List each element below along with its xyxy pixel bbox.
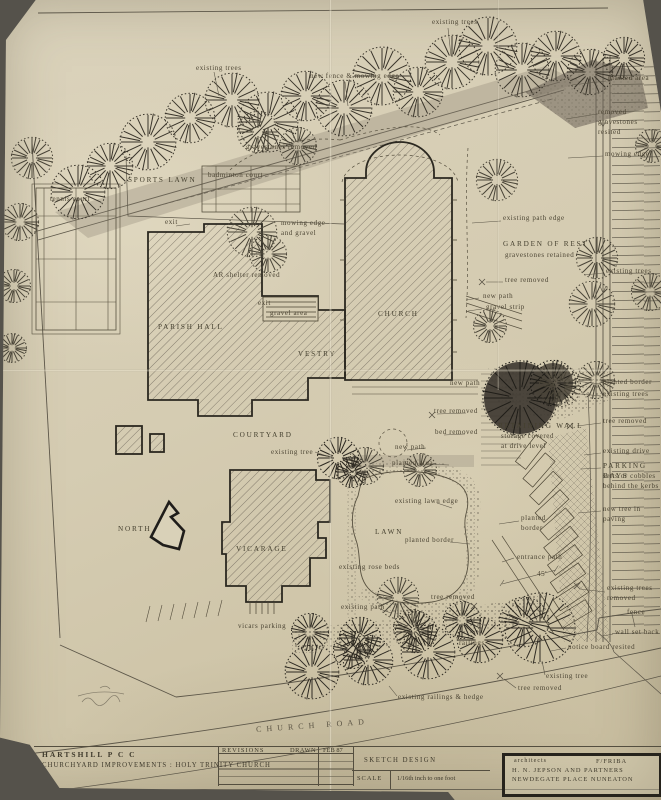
plan-annotations: existing treesnew fence & mowing edgeexi… [0,0,661,800]
label-existing-trees-bank: existing trees [603,390,649,400]
label-badminton-court: badminton court [208,171,263,181]
label-storage-covered: storage covered at drive level [501,432,554,452]
label-church: CHURCH [378,309,419,319]
label-north: NORTH [118,524,151,534]
drawing-sheet: existing treesnew fence & mowing edgeexi… [0,0,661,800]
label-planted-border-mid: planted border [521,514,546,534]
label-church-road: CHURCH ROAD [256,716,370,735]
label-setts-or-cobbles: setts or cobbles behind the kerbs [603,472,659,492]
label-existing-drive: existing drive [603,447,650,457]
photograph-of-drawing: existing treesnew fence & mowing edgeexi… [0,0,661,800]
label-existing-trees-top-left: existing trees [196,64,242,74]
label-exit-upper: exit [165,218,178,228]
label-planted-area-courtyard: planted area [392,459,433,469]
label-planted-area-right: planted area [608,74,649,84]
label-tree-removed-terrace: tree removed [434,407,478,417]
label-tree-removed-entrance: tree removed [518,684,562,694]
label-entrance-path: entrance path [517,553,562,563]
label-new-path-garden: new path [483,292,513,302]
label-parish-hall: PARISH HALL [158,322,224,332]
label-planted-border-right: planted border [603,378,652,388]
label-new-tree-in-paving: new tree in paving [603,505,661,525]
label-fence: fence [627,608,645,618]
label-tree-removed-garden: tree removed [505,276,549,286]
label-planted-border-lawn: planted border [405,536,454,546]
label-gravel-strip: gravel strip [486,303,525,313]
label-existing-lawn-edge: existing lawn edge [395,497,458,507]
label-tennis-court: tennis court [50,195,90,205]
label-existing-tree-entrance: existing tree [546,672,588,682]
label-existing-rose-beds: existing rose beds [339,563,400,573]
label-tree-removed-bank: tree removed [603,417,647,427]
label-ar-shelter-removed: AR shelter removed [213,271,280,281]
label-new-path-courtyard: new path [395,443,425,453]
label-existing-trees-removed: existing trees removed [607,584,653,604]
label-exit-lower: exit [258,299,271,309]
label-sports-lawn: SPORTS LAWN [128,175,197,185]
label-tree-removed-lawn: tree removed [431,593,475,603]
label-vicars-parking: vicars parking [238,622,286,632]
label-new-path-terrace: new path [450,379,480,389]
label-dimension-45ft: 45' [537,570,547,580]
label-garden-of-rest: GARDEN OF REST [503,239,589,249]
label-railings: railings [459,639,485,649]
label-bed-removed: bed removed [435,428,478,438]
label-wall-set-back: wall set back [615,628,659,638]
label-vicarage: VICARAGE [236,544,288,554]
label-existing-path: existing path [341,603,385,613]
label-vestry: VESTRY [298,349,336,359]
label-new-fence-mowing-edge: new fence & mowing edge [310,72,399,82]
label-removed-gravestones-resited: removed gravestones resited [598,108,661,137]
label-notice-board-resited: notice board resited [568,643,635,653]
label-mowing-edge-and-gravel: mowing edge and gravel [281,219,326,239]
label-existing-path-edge: existing path edge [503,214,565,224]
label-lawn: LAWN [375,527,403,537]
label-gravestones-retained: gravestones retained [505,251,574,261]
label-existing-trees-right: existing trees [606,267,652,277]
label-existing-railings-hedge: existing railings & hedge [398,693,484,703]
label-retaining-wall: RETAINING WALL [498,421,583,431]
label-gravel-area: gravel area [270,309,308,319]
label-gravestones-removed: gravestones removed [246,143,317,153]
label-courtyard: COURTYARD [233,430,293,440]
label-existing-tree-courtyard: existing tree [271,448,313,458]
label-existing-trees-top: existing trees [432,18,478,28]
label-mowing-edge-right: mowing edge [605,150,650,160]
